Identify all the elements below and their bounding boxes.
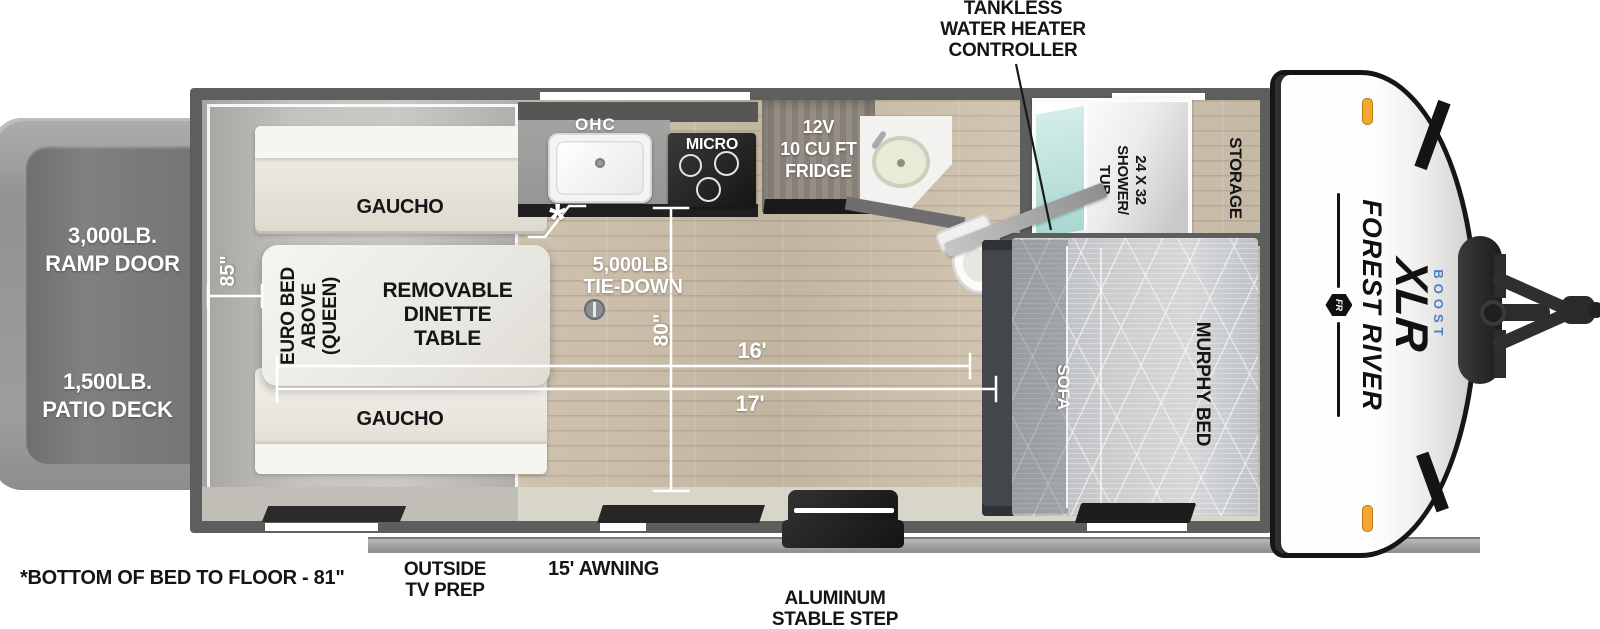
bedroom-floor-vent bbox=[1075, 503, 1196, 523]
stove-burner-3 bbox=[696, 177, 721, 202]
maker-label: FOREST RIVER bbox=[1356, 199, 1387, 411]
hitch-coupler-tip bbox=[1588, 302, 1600, 318]
ramp-door-label: 3,000LB. RAMP DOOR bbox=[30, 222, 195, 277]
murphy-bed-label: MURPHY BED bbox=[1188, 310, 1216, 458]
window-bottom-2 bbox=[600, 523, 646, 531]
window-bottom-1 bbox=[265, 523, 378, 531]
entry-step-lower bbox=[782, 520, 904, 548]
window-bottom-3 bbox=[1087, 523, 1187, 531]
euro-bed-label: EURO BED ABOVE (QUEEN) bbox=[272, 253, 346, 379]
shower-label: 24 X 32 SHOWER/ TUB bbox=[1092, 126, 1152, 234]
murphy-bed-frame bbox=[982, 240, 1016, 516]
dim-16ft-label: 16' bbox=[722, 339, 782, 363]
model-label: XLR bbox=[1391, 257, 1430, 353]
gaucho-bottom-label: GAUCHO bbox=[330, 409, 470, 431]
dim-17ft-label: 17' bbox=[720, 392, 780, 416]
stove-burner-1 bbox=[679, 154, 702, 177]
patio-deck-label: 1,500LB. PATIO DECK bbox=[25, 368, 190, 423]
awning-label: 15' AWNING bbox=[548, 559, 659, 581]
awning-arm bbox=[597, 505, 765, 523]
stove-burner-2 bbox=[714, 151, 739, 176]
gaucho-top-backrest bbox=[255, 126, 547, 158]
dinette-label: REMOVABLE DINETTE TABLE bbox=[360, 279, 535, 351]
micro-label: MICRO bbox=[668, 136, 756, 153]
tie-down-label: 5,000LB. TIE-DOWN bbox=[568, 254, 698, 298]
stable-step-label: ALUMINUM STABLE STEP bbox=[755, 588, 915, 629]
brand-block: BOOST XLR FOREST RIVER FR bbox=[1310, 85, 1460, 525]
bath-sink-drain bbox=[897, 159, 905, 167]
ohc-label: OHC bbox=[575, 116, 616, 134]
floorplan-canvas: 3,000LB. RAMP DOOR 1,500LB. PATIO DECK G… bbox=[0, 0, 1600, 629]
outside-tv bbox=[262, 506, 406, 522]
tongue-jack bbox=[1480, 300, 1506, 326]
dim-80-label: 80" bbox=[646, 302, 678, 358]
speed-line-left bbox=[1337, 193, 1340, 288]
bed-to-floor-note: *BOTTOM OF BED TO FLOOR - 81" bbox=[20, 568, 365, 590]
bed-height-asterisk: * bbox=[549, 196, 566, 244]
bed-seam-2 bbox=[1100, 248, 1102, 506]
gaucho-top-label: GAUCHO bbox=[330, 197, 470, 219]
kitchen-upper-cabinet bbox=[518, 102, 758, 122]
storage-label: STORAGE bbox=[1222, 130, 1248, 225]
tankless-callout: TANKLESS WATER HEATER CONTROLLER bbox=[928, 0, 1098, 61]
window-top-kitchen bbox=[540, 92, 750, 100]
sofa-label: SOFA bbox=[1050, 356, 1076, 418]
entry-step-slot bbox=[794, 508, 894, 513]
model-logo: BOOST XLR bbox=[1391, 259, 1444, 351]
maker-logo-row: FR bbox=[1325, 193, 1352, 417]
gaucho-bottom-backrest bbox=[255, 444, 547, 474]
kitchen-sink-basin bbox=[556, 141, 644, 195]
fr-diamond-logo: FR bbox=[1325, 294, 1352, 316]
outside-tv-label: OUTSIDE TV PREP bbox=[393, 559, 497, 601]
dim-85-label: 85" bbox=[212, 248, 246, 294]
tie-down-anchor-slot bbox=[593, 302, 596, 317]
kitchen-faucet bbox=[595, 158, 605, 168]
fridge-label: 12V 10 CU FT FRIDGE bbox=[762, 116, 875, 182]
speed-line-right bbox=[1337, 322, 1340, 417]
